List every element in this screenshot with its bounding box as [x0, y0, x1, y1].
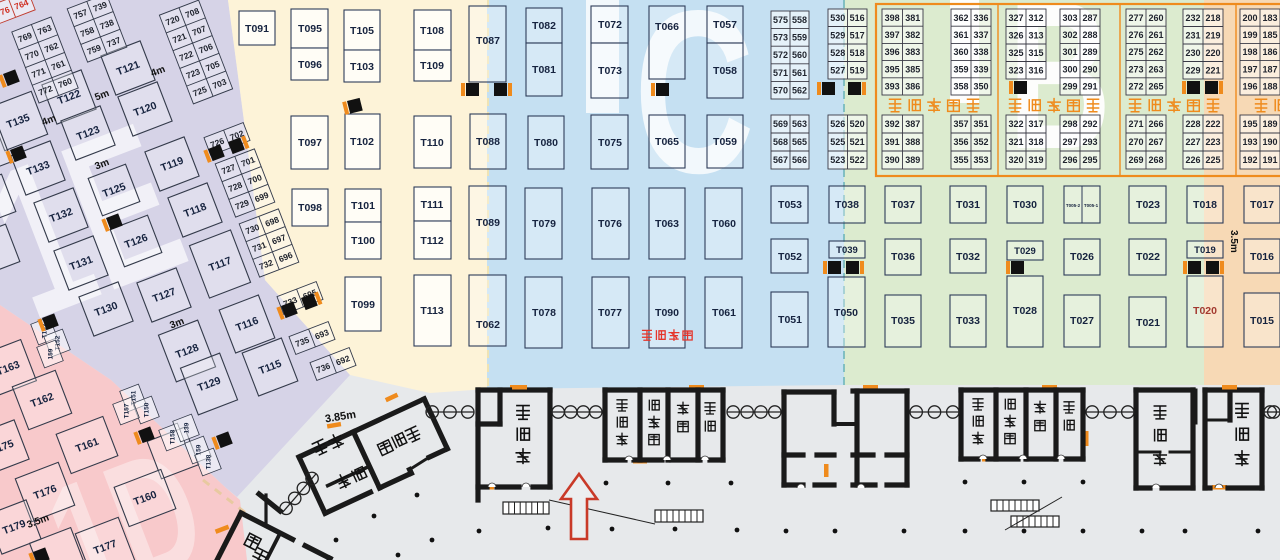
- svg-text:351: 351: [973, 119, 988, 129]
- svg-text:383: 383: [905, 47, 920, 57]
- svg-text:565: 565: [792, 137, 807, 147]
- svg-text:395: 395: [885, 64, 900, 74]
- svg-text:301: 301: [1062, 47, 1077, 57]
- svg-text:T077: T077: [598, 307, 622, 319]
- svg-text:T096: T096: [298, 59, 322, 71]
- svg-text:390: 390: [885, 155, 900, 165]
- svg-text:183: 183: [1262, 13, 1277, 23]
- svg-text:T027: T027: [1070, 315, 1094, 327]
- svg-text:317: 317: [1028, 119, 1043, 129]
- svg-text:562: 562: [792, 85, 807, 95]
- svg-text:336: 336: [973, 13, 988, 23]
- svg-text:398: 398: [885, 13, 900, 23]
- svg-text:522: 522: [850, 155, 865, 165]
- svg-text:381: 381: [905, 13, 920, 23]
- svg-text:T081: T081: [532, 64, 556, 76]
- svg-text:261: 261: [1148, 30, 1163, 40]
- svg-text:315: 315: [1028, 48, 1043, 58]
- svg-text:T052: T052: [778, 251, 802, 263]
- svg-text:357: 357: [953, 119, 968, 129]
- svg-text:272: 272: [1128, 82, 1143, 92]
- svg-text:T058: T058: [713, 65, 737, 77]
- svg-text:302: 302: [1062, 30, 1077, 40]
- svg-text:T026: T026: [1070, 251, 1094, 263]
- svg-text:299: 299: [1062, 82, 1077, 92]
- svg-text:298: 298: [1062, 119, 1077, 129]
- svg-text:T103: T103: [350, 61, 374, 73]
- svg-text:195: 195: [1242, 119, 1257, 129]
- svg-text:271: 271: [1128, 119, 1143, 129]
- svg-text:313: 313: [1028, 31, 1043, 41]
- svg-text:T057: T057: [713, 19, 737, 31]
- svg-text:229: 229: [1185, 66, 1200, 76]
- svg-text:T080: T080: [534, 137, 558, 149]
- svg-text:396: 396: [885, 47, 900, 57]
- svg-text:3.5m: 3.5m: [1228, 230, 1239, 253]
- svg-text:361: 361: [953, 30, 968, 40]
- svg-text:358: 358: [953, 82, 968, 92]
- svg-text:318: 318: [1028, 137, 1043, 147]
- svg-text:T098: T098: [298, 202, 322, 214]
- svg-text:561: 561: [792, 68, 807, 78]
- svg-text:T005-2: T005-2: [1066, 203, 1081, 208]
- svg-text:321: 321: [1008, 137, 1023, 147]
- svg-text:525: 525: [830, 137, 845, 147]
- svg-text:292: 292: [1082, 119, 1097, 129]
- svg-text:T062: T062: [476, 319, 500, 331]
- svg-text:316: 316: [1028, 66, 1043, 76]
- svg-text:T150: T150: [143, 402, 150, 417]
- svg-text:339: 339: [973, 64, 988, 74]
- svg-text:222: 222: [1205, 119, 1220, 129]
- svg-text:T050: T050: [834, 307, 858, 319]
- svg-text:218: 218: [1205, 13, 1220, 23]
- svg-text:159: 159: [47, 348, 54, 359]
- svg-text:266: 266: [1148, 119, 1163, 129]
- svg-text:277: 277: [1128, 13, 1143, 23]
- svg-text:T108: T108: [420, 25, 444, 37]
- svg-text:193: 193: [1242, 137, 1257, 147]
- svg-text:T038: T038: [835, 199, 859, 211]
- svg-text:T076: T076: [598, 218, 622, 230]
- svg-text:560: 560: [792, 50, 807, 60]
- svg-text:T063: T063: [655, 218, 679, 230]
- svg-text:197: 197: [1242, 64, 1257, 74]
- svg-text:312: 312: [1028, 13, 1043, 23]
- svg-text:296: 296: [1062, 155, 1077, 165]
- svg-text:T100: T100: [351, 235, 375, 247]
- svg-text:T005-1: T005-1: [1084, 203, 1099, 208]
- svg-text:T021: T021: [1136, 317, 1160, 329]
- svg-text:295: 295: [1082, 155, 1097, 165]
- svg-text:T102: T102: [350, 136, 374, 148]
- svg-text:520: 520: [850, 119, 865, 129]
- svg-text:523: 523: [830, 155, 845, 165]
- svg-text:T097: T097: [298, 137, 322, 149]
- svg-text:269: 269: [1128, 155, 1143, 165]
- svg-text:353: 353: [973, 155, 988, 165]
- svg-text:T110: T110: [420, 137, 444, 149]
- svg-text:T035: T035: [891, 315, 915, 327]
- svg-text:T023: T023: [1136, 199, 1160, 211]
- svg-text:T075: T075: [598, 137, 622, 149]
- svg-text:T087: T087: [476, 35, 500, 47]
- svg-text:275: 275: [1128, 47, 1143, 57]
- svg-text:325: 325: [1008, 48, 1023, 58]
- svg-text:T072: T072: [598, 19, 622, 31]
- svg-text:191: 191: [1262, 155, 1277, 165]
- svg-text:516: 516: [850, 13, 865, 23]
- svg-text:T031: T031: [956, 199, 980, 211]
- svg-text:323: 323: [1008, 66, 1023, 76]
- svg-text:T109: T109: [420, 60, 444, 72]
- svg-text:566: 566: [792, 155, 807, 165]
- svg-text:338: 338: [973, 47, 988, 57]
- svg-text:T079: T079: [532, 218, 556, 230]
- svg-text:563: 563: [792, 119, 807, 129]
- svg-text:322: 322: [1008, 119, 1023, 129]
- svg-text:267: 267: [1148, 137, 1163, 147]
- svg-text:T101: T101: [351, 200, 375, 212]
- svg-text:T111: T111: [421, 199, 444, 211]
- svg-text:T078: T078: [532, 307, 556, 319]
- svg-text:T019: T019: [1194, 245, 1216, 256]
- svg-text:226: 226: [1185, 155, 1200, 165]
- svg-text:231: 231: [1185, 31, 1200, 41]
- svg-text:391: 391: [885, 137, 900, 147]
- svg-text:T020: T020: [1193, 305, 1217, 317]
- svg-text:192: 192: [1242, 155, 1257, 165]
- svg-text:362: 362: [953, 13, 968, 23]
- svg-text:352: 352: [973, 137, 988, 147]
- svg-text:T039: T039: [836, 245, 858, 256]
- svg-text:393: 393: [885, 82, 900, 92]
- svg-text:527: 527: [830, 66, 845, 76]
- svg-text:230: 230: [1185, 48, 1200, 58]
- svg-text:T059: T059: [713, 136, 737, 148]
- svg-text:T065: T065: [655, 136, 679, 148]
- svg-text:521: 521: [850, 137, 865, 147]
- svg-text:T016: T016: [1250, 251, 1274, 263]
- svg-text:189: 189: [1262, 119, 1277, 129]
- svg-text:219: 219: [1205, 31, 1220, 41]
- svg-text:568: 568: [773, 137, 788, 147]
- svg-text:518: 518: [850, 48, 865, 58]
- svg-text:570: 570: [773, 85, 788, 95]
- svg-text:572: 572: [773, 50, 788, 60]
- svg-text:529: 529: [830, 31, 845, 41]
- svg-text:350: 350: [973, 82, 988, 92]
- svg-text:185: 185: [1262, 30, 1277, 40]
- svg-text:T088: T088: [476, 136, 500, 148]
- svg-text:T028: T028: [1013, 305, 1037, 317]
- svg-text:T073: T073: [598, 65, 622, 77]
- svg-text:221: 221: [1205, 66, 1220, 76]
- svg-text:519: 519: [850, 66, 865, 76]
- svg-text:T138: T138: [205, 454, 212, 469]
- svg-text:291: 291: [1082, 82, 1097, 92]
- svg-text:297: 297: [1062, 137, 1077, 147]
- svg-text:528: 528: [830, 48, 845, 58]
- svg-text:290: 290: [1082, 64, 1097, 74]
- svg-text:190: 190: [1262, 137, 1277, 147]
- svg-text:T082: T082: [532, 20, 556, 32]
- svg-text:559: 559: [792, 33, 807, 43]
- svg-text:327: 327: [1008, 13, 1023, 23]
- svg-text:198: 198: [1242, 47, 1257, 57]
- svg-text:387: 387: [905, 119, 920, 129]
- svg-text:T060: T060: [712, 218, 736, 230]
- svg-text:326: 326: [1008, 31, 1023, 41]
- svg-text:T032: T032: [956, 251, 980, 263]
- svg-text:382: 382: [905, 30, 920, 40]
- svg-text:571: 571: [773, 68, 788, 78]
- svg-text:263: 263: [1148, 64, 1163, 74]
- svg-text:265: 265: [1148, 82, 1163, 92]
- svg-text:227: 227: [1185, 137, 1200, 147]
- svg-text:228: 228: [1185, 119, 1200, 129]
- svg-text:530: 530: [830, 13, 845, 23]
- svg-text:T053: T053: [778, 199, 802, 211]
- svg-text:T105: T105: [350, 25, 374, 37]
- svg-text:573: 573: [773, 33, 788, 43]
- svg-text:T015: T015: [1250, 315, 1274, 327]
- svg-text:T158: T158: [169, 429, 176, 444]
- svg-text:187: 187: [1262, 64, 1277, 74]
- svg-text:199: 199: [1242, 30, 1257, 40]
- svg-text:T018: T018: [1193, 199, 1217, 211]
- svg-text:569: 569: [773, 119, 788, 129]
- svg-text:186: 186: [1262, 47, 1277, 57]
- svg-text:T090: T090: [655, 307, 679, 319]
- svg-text:360: 360: [953, 47, 968, 57]
- svg-text:268: 268: [1148, 155, 1163, 165]
- svg-text:386: 386: [905, 82, 920, 92]
- svg-text:T017: T017: [1250, 199, 1274, 211]
- svg-text:196: 196: [1242, 82, 1257, 92]
- svg-text:T112: T112: [420, 235, 444, 247]
- svg-text:289: 289: [1082, 47, 1097, 57]
- svg-text:T030: T030: [1013, 199, 1037, 211]
- svg-text:T033: T033: [956, 315, 980, 327]
- svg-text:T022: T022: [1136, 251, 1160, 263]
- svg-text:293: 293: [1082, 137, 1097, 147]
- svg-text:276: 276: [1128, 30, 1143, 40]
- svg-text:260: 260: [1148, 13, 1163, 23]
- svg-text:389: 389: [905, 155, 920, 165]
- svg-text:300: 300: [1062, 64, 1077, 74]
- svg-text:303: 303: [1062, 13, 1077, 23]
- svg-text:517: 517: [850, 31, 865, 41]
- svg-text:T066: T066: [655, 21, 679, 33]
- svg-text:558: 558: [792, 15, 807, 25]
- svg-text:225: 225: [1205, 155, 1220, 165]
- svg-text:397: 397: [885, 30, 900, 40]
- svg-text:T091: T091: [245, 23, 269, 35]
- svg-text:575: 575: [773, 15, 788, 25]
- svg-text:319: 319: [1028, 155, 1043, 165]
- svg-text:T029: T029: [1014, 246, 1036, 257]
- svg-text:139: 139: [184, 422, 191, 433]
- svg-text:T089: T089: [476, 217, 500, 229]
- svg-text:200: 200: [1242, 13, 1257, 23]
- svg-text:359: 359: [953, 64, 968, 74]
- svg-text:T061: T061: [712, 307, 736, 319]
- svg-text:356: 356: [953, 137, 968, 147]
- svg-text:262: 262: [1148, 47, 1163, 57]
- svg-text:273: 273: [1128, 64, 1143, 74]
- svg-text:388: 388: [905, 137, 920, 147]
- svg-text:355: 355: [953, 155, 968, 165]
- svg-text:T037: T037: [891, 199, 915, 211]
- svg-text:287: 287: [1082, 13, 1097, 23]
- svg-text:385: 385: [905, 64, 920, 74]
- svg-text:T095: T095: [298, 23, 322, 35]
- svg-text:220: 220: [1205, 48, 1220, 58]
- svg-text:567: 567: [773, 155, 788, 165]
- svg-text:T051: T051: [778, 314, 802, 326]
- svg-text:270: 270: [1128, 137, 1143, 147]
- svg-text:320: 320: [1008, 155, 1023, 165]
- svg-text:223: 223: [1205, 137, 1220, 147]
- svg-text:188: 188: [1262, 82, 1277, 92]
- svg-text:288: 288: [1082, 30, 1097, 40]
- svg-text:392: 392: [885, 119, 900, 129]
- svg-text:232: 232: [1185, 13, 1200, 23]
- svg-text:T157: T157: [124, 403, 131, 418]
- svg-text:526: 526: [830, 119, 845, 129]
- svg-text:T099: T099: [351, 299, 375, 311]
- svg-text:T036: T036: [891, 251, 915, 263]
- svg-text:337: 337: [973, 30, 988, 40]
- svg-text:T113: T113: [420, 305, 444, 317]
